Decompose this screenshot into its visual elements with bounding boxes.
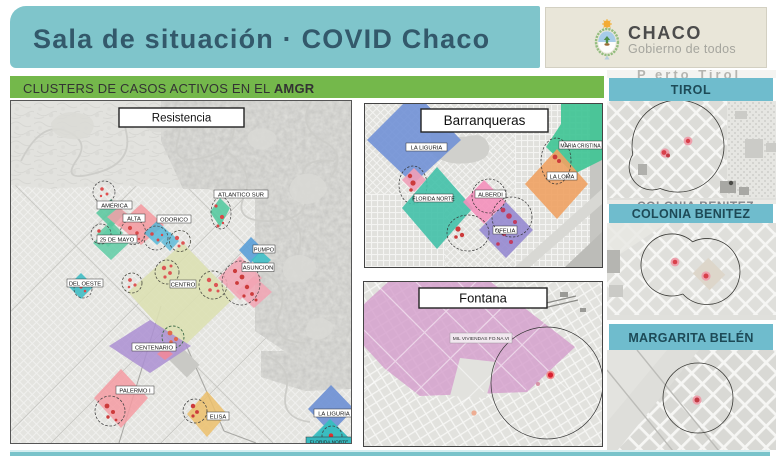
svg-text:MARIA CRISTINA: MARIA CRISTINA <box>560 143 601 149</box>
svg-text:AMÉRICA: AMÉRICA <box>101 202 128 209</box>
svg-text:Fontana: Fontana <box>459 291 507 306</box>
svg-text:DEL OESTE: DEL OESTE <box>69 281 101 287</box>
svg-text:Resistencia: Resistencia <box>152 113 212 125</box>
svg-text:FLORIDA NORTE: FLORIDA NORTE <box>310 439 349 443</box>
svg-text:CENTRO: CENTRO <box>171 282 196 288</box>
svg-text:FLORIDA NORTE: FLORIDA NORTE <box>412 196 455 202</box>
svg-text:CENTENARIO: CENTENARIO <box>135 345 173 351</box>
svg-text:MIL VIVIENDAS FO.NA.VI: MIL VIVIENDAS FO.NA.VI <box>453 336 510 342</box>
svg-text:25 DE MAYO: 25 DE MAYO <box>100 237 135 243</box>
svg-text:ALTA: ALTA <box>127 216 141 222</box>
svg-text:PALERMO I: PALERMO I <box>119 388 151 394</box>
svg-text:Barranqueras: Barranqueras <box>444 113 526 128</box>
svg-text:ASUNCION: ASUNCION <box>243 266 274 272</box>
svg-text:LA LIGURIA: LA LIGURIA <box>318 411 350 417</box>
svg-text:ODORICO: ODORICO <box>160 217 188 223</box>
svg-text:PUMPO: PUMPO <box>254 247 275 253</box>
svg-text:LA LIGURIA: LA LIGURIA <box>411 145 443 151</box>
svg-text:ALBERDI: ALBERDI <box>478 192 503 198</box>
svg-text:ELISA: ELISA <box>210 414 227 420</box>
svg-text:LA LOMA: LA LOMA <box>550 174 575 180</box>
svg-text:OFELIA: OFELIA <box>495 228 516 234</box>
svg-text:ATLANTICO SUR: ATLANTICO SUR <box>218 192 264 198</box>
